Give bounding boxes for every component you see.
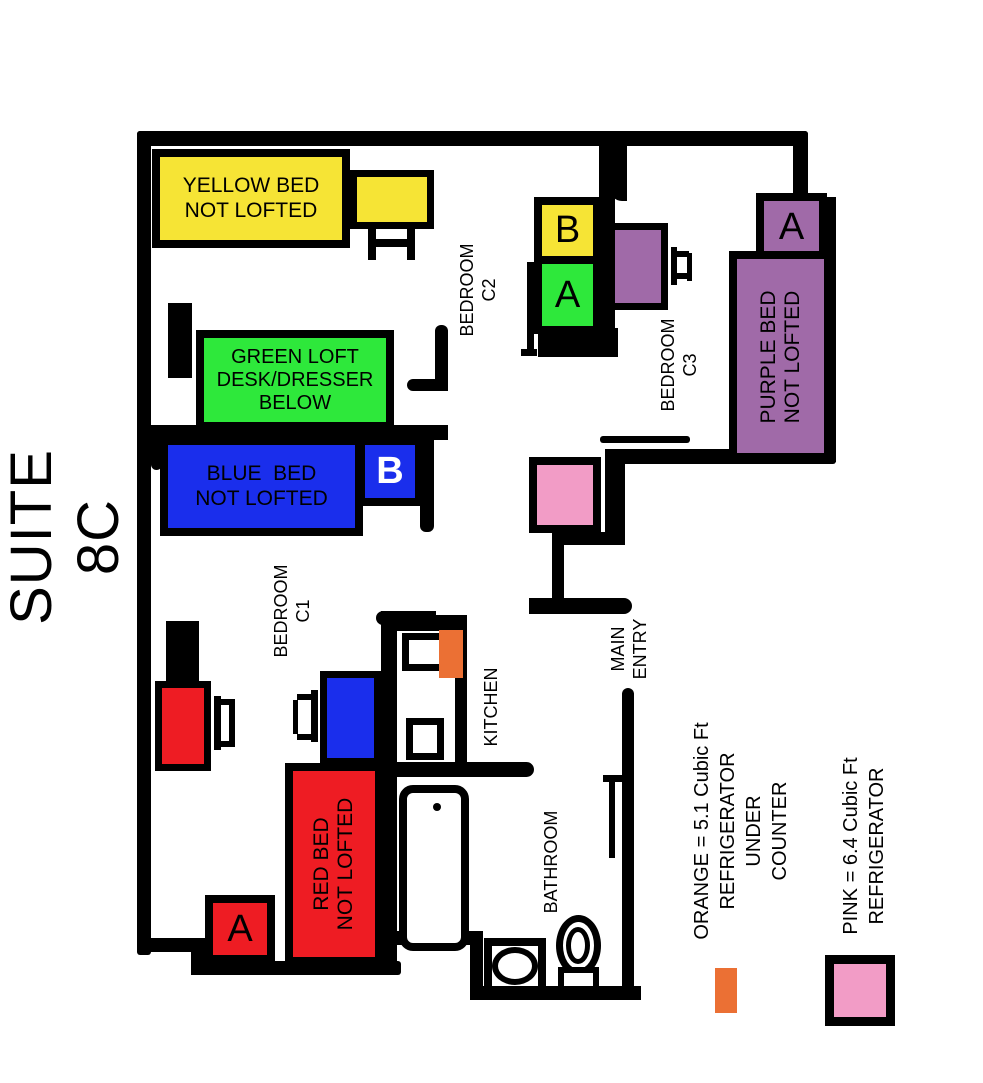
wall-left	[137, 131, 151, 955]
suite-title: SUITE 8C	[36, 412, 96, 662]
wall-entry-right	[622, 688, 634, 1000]
blue-bed: BLUE BED NOT LOFTED	[160, 437, 363, 536]
bathroom-sink	[484, 938, 546, 994]
blue-desk	[320, 671, 381, 765]
floor-plan: YELLOW BED NOT LOFTED GREEN LOFT DESK/DR…	[0, 0, 983, 1083]
c3-desk	[608, 223, 668, 310]
blue-bed-label: BLUE BED NOT LOFTED	[195, 462, 328, 510]
c2-closet-a: A	[534, 256, 601, 334]
kitchen-stove	[406, 718, 444, 760]
c2-closet-b: B	[534, 197, 601, 264]
green-loft-label: GREEN LOFT DESK/DRESSER BELOW	[217, 346, 374, 415]
wall-kitchen-top	[385, 615, 466, 631]
legend-pink-text: PINK = 6.4 Cubic Ft REFRIGERATOR	[838, 746, 890, 946]
red-desk-chair-icon	[214, 696, 238, 751]
legend-orange-swatch	[715, 968, 737, 1013]
yellow-desk	[350, 170, 434, 229]
green-loft-bed: GREEN LOFT DESK/DRESSER BELOW	[196, 330, 394, 430]
chair-bar	[311, 690, 318, 742]
chair-bar	[229, 703, 235, 744]
yellow-desk-chair-icon	[366, 223, 416, 261]
room-label-kitchen: KITCHEN	[480, 662, 502, 752]
toilet	[556, 915, 601, 995]
toilet-bowl-inner	[566, 927, 590, 964]
yellow-bed-label: YELLOW BED NOT LOFTED	[183, 174, 320, 222]
wall-bedroom-c2-east-chunk	[610, 145, 627, 201]
chair-bar	[687, 253, 692, 281]
legend-orange-text: ORANGE = 5.1 Cubic Ft REFRIGERATOR UNDER…	[702, 716, 780, 946]
c1-dresser	[166, 621, 199, 683]
wall-right-top	[793, 131, 808, 202]
bathroom-sink-basin	[492, 947, 538, 985]
c3-desk-chair-icon	[671, 247, 693, 285]
red-desk	[155, 681, 211, 771]
wall-kitchen-bottom	[388, 762, 534, 777]
wall-entry-v1	[605, 449, 625, 545]
bathtub	[399, 785, 469, 951]
c2-closet-a-letter: A	[555, 274, 580, 317]
purple-bed-a-letter: A	[779, 206, 804, 249]
wall-top	[137, 131, 808, 146]
yellow-bed: YELLOW BED NOT LOFTED	[152, 149, 350, 248]
blue-bed-b-letter: B	[376, 450, 403, 493]
door-leaf-main-entry-tick	[603, 775, 622, 782]
wall-entry-h2	[529, 598, 632, 614]
wall-entry-v2	[552, 532, 564, 608]
chair-bar	[293, 700, 298, 734]
chair-bar	[297, 734, 311, 740]
chair-bar	[368, 239, 415, 247]
red-bed-a-tag: A	[205, 895, 275, 963]
blue-desk-chair-icon	[293, 690, 318, 744]
wall-bottom-step-h	[137, 938, 198, 952]
chair-bar	[297, 694, 311, 700]
room-label-bathroom: BATHROOM	[540, 807, 562, 917]
blue-bed-b-tag: B	[357, 437, 423, 506]
red-bed-a-letter: A	[227, 908, 252, 951]
pink-refrigerator-plan	[529, 457, 601, 533]
legend-pink-swatch	[825, 955, 895, 1026]
room-label-bedroom-c1: BEDROOM C1	[270, 561, 314, 661]
chair-bar	[214, 696, 221, 750]
room-label-main-entry: MAIN ENTRY	[607, 613, 651, 685]
toilet-tank	[558, 967, 599, 992]
wall-bedroom-c1-east-lower	[381, 611, 397, 970]
room-label-bedroom-c2: BEDROOM C2	[456, 240, 500, 340]
bathtub-drain	[433, 803, 441, 811]
c2-closet-b-letter: B	[555, 209, 580, 252]
wall-c2-corner-h	[407, 379, 448, 391]
door-leaf-bedroom-c2-tick	[521, 349, 537, 356]
door-leaf-bedroom-c2	[527, 262, 534, 352]
room-label-bedroom-c3: BEDROOM C3	[657, 315, 701, 415]
orange-refrigerator-plan	[439, 630, 463, 678]
red-bed-label: RED BED NOT LOFTED	[311, 779, 357, 949]
purple-bed-label: PURPLE BED NOT LOFTED	[757, 257, 805, 457]
c2-dresser	[168, 303, 192, 378]
door-leaf-bedroom-c3	[600, 436, 690, 443]
door-leaf-main-entry	[609, 775, 615, 858]
